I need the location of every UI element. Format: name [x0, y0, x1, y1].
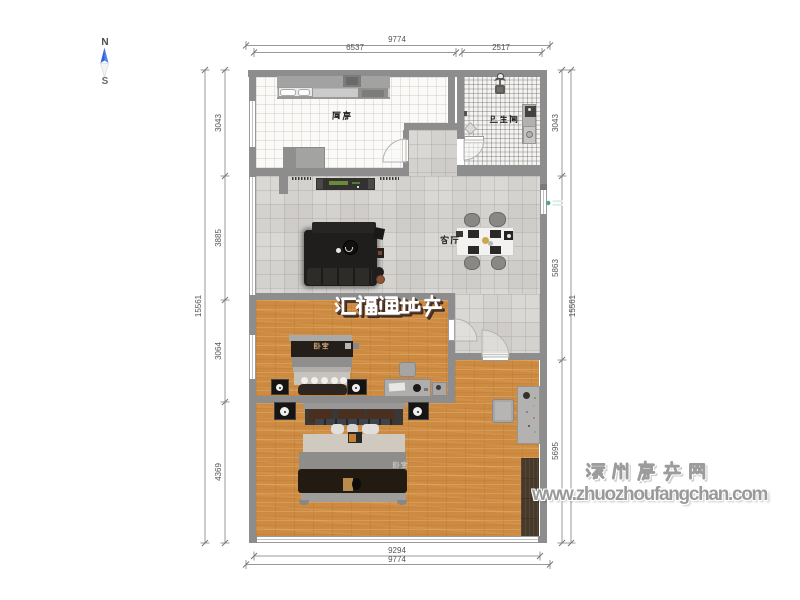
svg-text:3885: 3885 — [214, 229, 223, 247]
svg-text:15561: 15561 — [194, 294, 203, 317]
svg-text:3064: 3064 — [214, 342, 223, 360]
svg-text:6537: 6537 — [346, 43, 364, 52]
svg-text:S: S — [102, 76, 109, 87]
svg-text:3043: 3043 — [551, 114, 560, 132]
svg-text:5695: 5695 — [551, 442, 560, 460]
svg-text:9774: 9774 — [388, 35, 406, 44]
svg-text:15561: 15561 — [568, 294, 577, 317]
svg-text:N: N — [101, 37, 108, 48]
svg-text:3043: 3043 — [214, 114, 223, 132]
svg-text:5863: 5863 — [551, 259, 560, 277]
svg-text:2517: 2517 — [492, 43, 510, 52]
svg-text:9774: 9774 — [388, 555, 406, 564]
svg-text:4369: 4369 — [214, 463, 223, 481]
svg-text:9294: 9294 — [388, 546, 406, 555]
